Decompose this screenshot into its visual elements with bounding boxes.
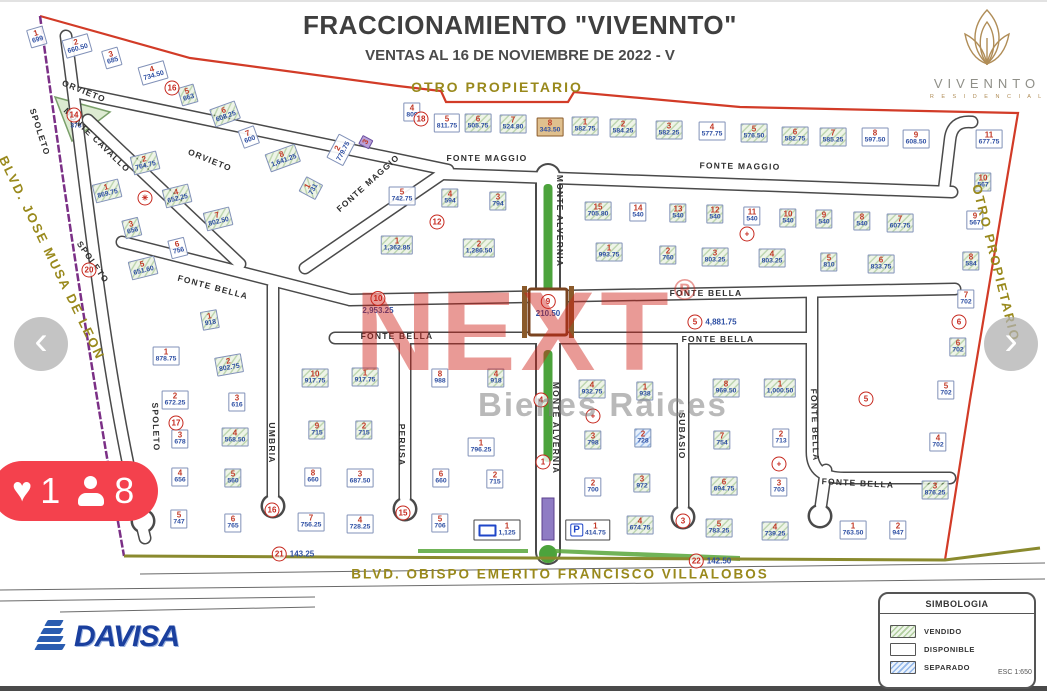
lot-label: 11540 (743, 206, 760, 225)
street-label: FONTE MAGGIO (447, 153, 528, 163)
views-group: 8 (76, 470, 134, 512)
brand-subtitle: R E S I D E N C I A L (928, 94, 1046, 100)
lot-label: 8343.50 (537, 117, 564, 136)
davisa-logo: DAVISA (36, 618, 179, 656)
person-icon (76, 476, 106, 506)
street-label: SPOLETO (150, 402, 162, 451)
lot-label: 11,000.50 (764, 378, 796, 397)
lotus-icon (952, 8, 1022, 74)
circled-number: 18 (414, 112, 429, 127)
lot-label: 4594 (441, 188, 458, 207)
lot-label: 3803.25 (702, 247, 729, 266)
lot-label: 5576.50 (741, 123, 768, 142)
lot-label: 2715 (355, 420, 372, 439)
lot-label: 2700 (584, 477, 601, 496)
lot-label: 12540 (706, 204, 723, 223)
lot-label: 2728 (634, 428, 651, 447)
lot-label: 5706 (431, 513, 448, 532)
lot-label: 1796.25 (468, 437, 495, 456)
lot-label: 5810 (820, 252, 837, 271)
chevron-left-icon: ‹ (34, 321, 47, 361)
legend-title: SIMBOLOGIA (880, 594, 1034, 614)
map-title-block: FRACCIONAMIENTO "VIVENNTO" VENTAS AL 16 … (280, 10, 760, 64)
circled-number: + (772, 457, 787, 472)
lot-label: 4803.25 (759, 248, 786, 267)
lot-label: 10540 (779, 208, 796, 227)
lot-label: 3687.50 (347, 468, 374, 487)
lot-label: 1878.75 (153, 346, 180, 365)
lot-label: 3972 (633, 473, 650, 492)
lot-label: 7756.25 (298, 512, 325, 531)
lot-label: 3678 (171, 429, 188, 448)
davisa-swoosh-icon (36, 618, 70, 656)
lot-label: 7607.75 (887, 213, 914, 232)
brand-name: VIVENNTO (928, 76, 1046, 91)
lot-label: 2715 (486, 469, 503, 488)
legend-item: DISPONIBLE (890, 643, 1024, 656)
boundary-label: OTRO PROPIETARIO (411, 79, 583, 95)
lot-label: 8584 (962, 251, 979, 270)
lot-label: 7754 (713, 430, 730, 449)
lot-label: 10917.75 (302, 368, 329, 387)
carousel-prev-button[interactable]: ‹ (14, 317, 68, 371)
page-title: FRACCIONAMIENTO "VIVENNTO" (280, 10, 760, 41)
lot-label: 5742.75 (389, 186, 416, 205)
lot-label: 6582.75 (782, 126, 809, 145)
legend-swatch-separado (890, 661, 916, 674)
street-label: UMBRIA (267, 422, 277, 463)
lot-label: 4702 (929, 432, 946, 451)
boundary-label: BLVD. OBISPO EMERITO FRANCISCO VILLALOBO… (351, 567, 769, 582)
davisa-wordmark: DAVISA (74, 620, 179, 654)
circled-number: 17 (169, 416, 184, 431)
lot-label: 3794 (489, 191, 506, 210)
scale-label: ESC 1:650 (998, 669, 1032, 676)
lot-label: 5783.25 (706, 518, 733, 537)
lot-label: 11,362.85 (381, 235, 413, 254)
legend-swatch-disponible (890, 643, 916, 656)
lot-label: 11,125 (473, 519, 520, 540)
lot-label: 7585.25 (820, 127, 847, 146)
lot-label: 8660 (304, 467, 321, 486)
lot-label: 6694.75 (711, 476, 738, 495)
block-marker: + (772, 457, 787, 472)
circled-number: 22 (689, 554, 704, 569)
lot-label: 8597.50 (862, 127, 889, 146)
lot-label: 3703 (770, 477, 787, 496)
lot-label: 2947 (889, 520, 906, 539)
lot-label: 2672.25 (162, 390, 189, 409)
lot-label: 21,286.50 (463, 238, 495, 257)
lot-label: 8540 (853, 211, 870, 230)
views-count: 8 (114, 470, 134, 512)
legend-label: SEPARADO (924, 663, 970, 672)
lot-label: 11677.75 (976, 129, 1003, 148)
lot-label: 9715 (308, 420, 325, 439)
legend-label: DISPONIBLE (924, 645, 975, 654)
block-marker: 20 (82, 263, 97, 278)
watermark-bienes-raices: Bienes Raices (478, 386, 728, 424)
circled-number: 14 (67, 108, 82, 123)
street-label: PERUSA (397, 424, 407, 467)
legend-swatch-vendido (890, 625, 916, 638)
area-value: 143.25 (290, 550, 314, 559)
legend-label: VENDIDO (924, 627, 962, 636)
lot-label: P1414.75 (565, 519, 610, 540)
legend-rows: VENDIDODISPONIBLESEPARADO (880, 614, 1034, 687)
lot-label: 3582.25 (656, 120, 683, 139)
block-marker: 16 (165, 81, 180, 96)
street-label: MONTE ALVERNIA (555, 175, 565, 267)
lot-label: 5560 (224, 468, 241, 487)
circled-number: 12 (430, 215, 445, 230)
circled-number: ✳ (138, 191, 153, 206)
block-marker: 16 (265, 503, 280, 518)
circled-number: 5 (859, 392, 874, 407)
lot-label: 5747 (170, 509, 187, 528)
circled-number: 15 (396, 506, 411, 521)
circled-number: 6 (952, 315, 967, 330)
circled-number: 16 (265, 503, 280, 518)
block-marker: 22142.50 (689, 554, 731, 569)
lot-label: 4728.25 (347, 514, 374, 533)
lot-label: 15705.80 (585, 201, 612, 220)
lot-label: 3876.25 (922, 480, 949, 499)
likes-count: 1 (40, 470, 60, 512)
block-marker: 5 (859, 392, 874, 407)
block-marker: 12 (430, 215, 445, 230)
block-marker: 21143.25 (272, 547, 314, 562)
likes-group: ♥ 1 (12, 470, 60, 512)
registered-icon: ® (674, 274, 701, 307)
lot-label: 2713 (772, 428, 789, 447)
lot-label: 6505.75 (465, 113, 492, 132)
lot-label: 5811.75 (434, 113, 460, 132)
block-marker: 14 (67, 108, 82, 123)
circled-number: 20 (82, 263, 97, 278)
vivennto-logo: VIVENNTO R E S I D E N C I A L (928, 8, 1046, 100)
carousel-next-button[interactable]: › (984, 317, 1038, 371)
block-marker: 6 (952, 315, 967, 330)
entrance-monument-strip (542, 498, 554, 540)
lot-label: 1918 (200, 309, 220, 331)
entrance-green (539, 545, 557, 563)
lot-label: 4577.75 (699, 121, 726, 140)
lot-label: 7702 (957, 289, 974, 308)
block-marker: 18 (414, 112, 429, 127)
area-value: 4,881.75 (705, 318, 736, 327)
street-label: FONTE MAGGIO (699, 160, 780, 171)
lot-label: 4568.50 (222, 427, 249, 446)
block-marker: + (740, 227, 755, 242)
area-value: 142.50 (707, 557, 731, 566)
lot-label: 3798 (584, 430, 601, 449)
chevron-right-icon: › (1004, 321, 1017, 361)
circled-number: 3 (676, 514, 691, 529)
block-marker: 3 (676, 514, 691, 529)
page-subtitle: VENTAS AL 16 DE NOVIEMBRE DE 2022 - V (280, 47, 760, 64)
lot-label: 1993.75 (596, 242, 623, 261)
lot-label: 6833.75 (868, 254, 895, 273)
lot-label: 7524.80 (500, 114, 527, 133)
block-marker: 17 (169, 416, 184, 431)
block-marker: 15 (396, 506, 411, 521)
lot-label: 6660 (432, 468, 449, 487)
lot-label: 1582.75 (572, 116, 599, 135)
lot-label: 4674.75 (627, 515, 654, 534)
circled-number: + (740, 227, 755, 242)
heart-icon: ♥ (12, 473, 32, 507)
pool-icon (478, 524, 496, 536)
circled-number: 1 (536, 455, 551, 470)
circled-number: 16 (165, 81, 180, 96)
watermark-next: NEXT® (355, 276, 701, 388)
lot-label: 4656 (171, 467, 188, 486)
lot-label: 14540 (629, 202, 646, 221)
lot-label: 2584.25 (610, 118, 637, 137)
block-marker: 1 (536, 455, 551, 470)
parking-icon: P (570, 523, 583, 536)
lot-label: 2760 (659, 245, 676, 264)
lot-label: 9540 (815, 209, 832, 228)
lot-label: 4739.25 (762, 521, 789, 540)
lot-label: 5702 (937, 380, 954, 399)
lot-label: 9608.50 (903, 129, 930, 148)
lot-label: 6765 (224, 513, 241, 532)
lot-label: 1763.50 (840, 520, 867, 539)
lot-label: 13540 (669, 203, 686, 222)
block-marker: ✳ (138, 191, 153, 206)
lot-label: 6702 (949, 337, 966, 356)
circled-number: 21 (272, 547, 287, 562)
lot-label: 3616 (228, 392, 245, 411)
legend-item: VENDIDO (890, 625, 1024, 638)
stats-badge: ♥ 1 8 (0, 461, 158, 521)
